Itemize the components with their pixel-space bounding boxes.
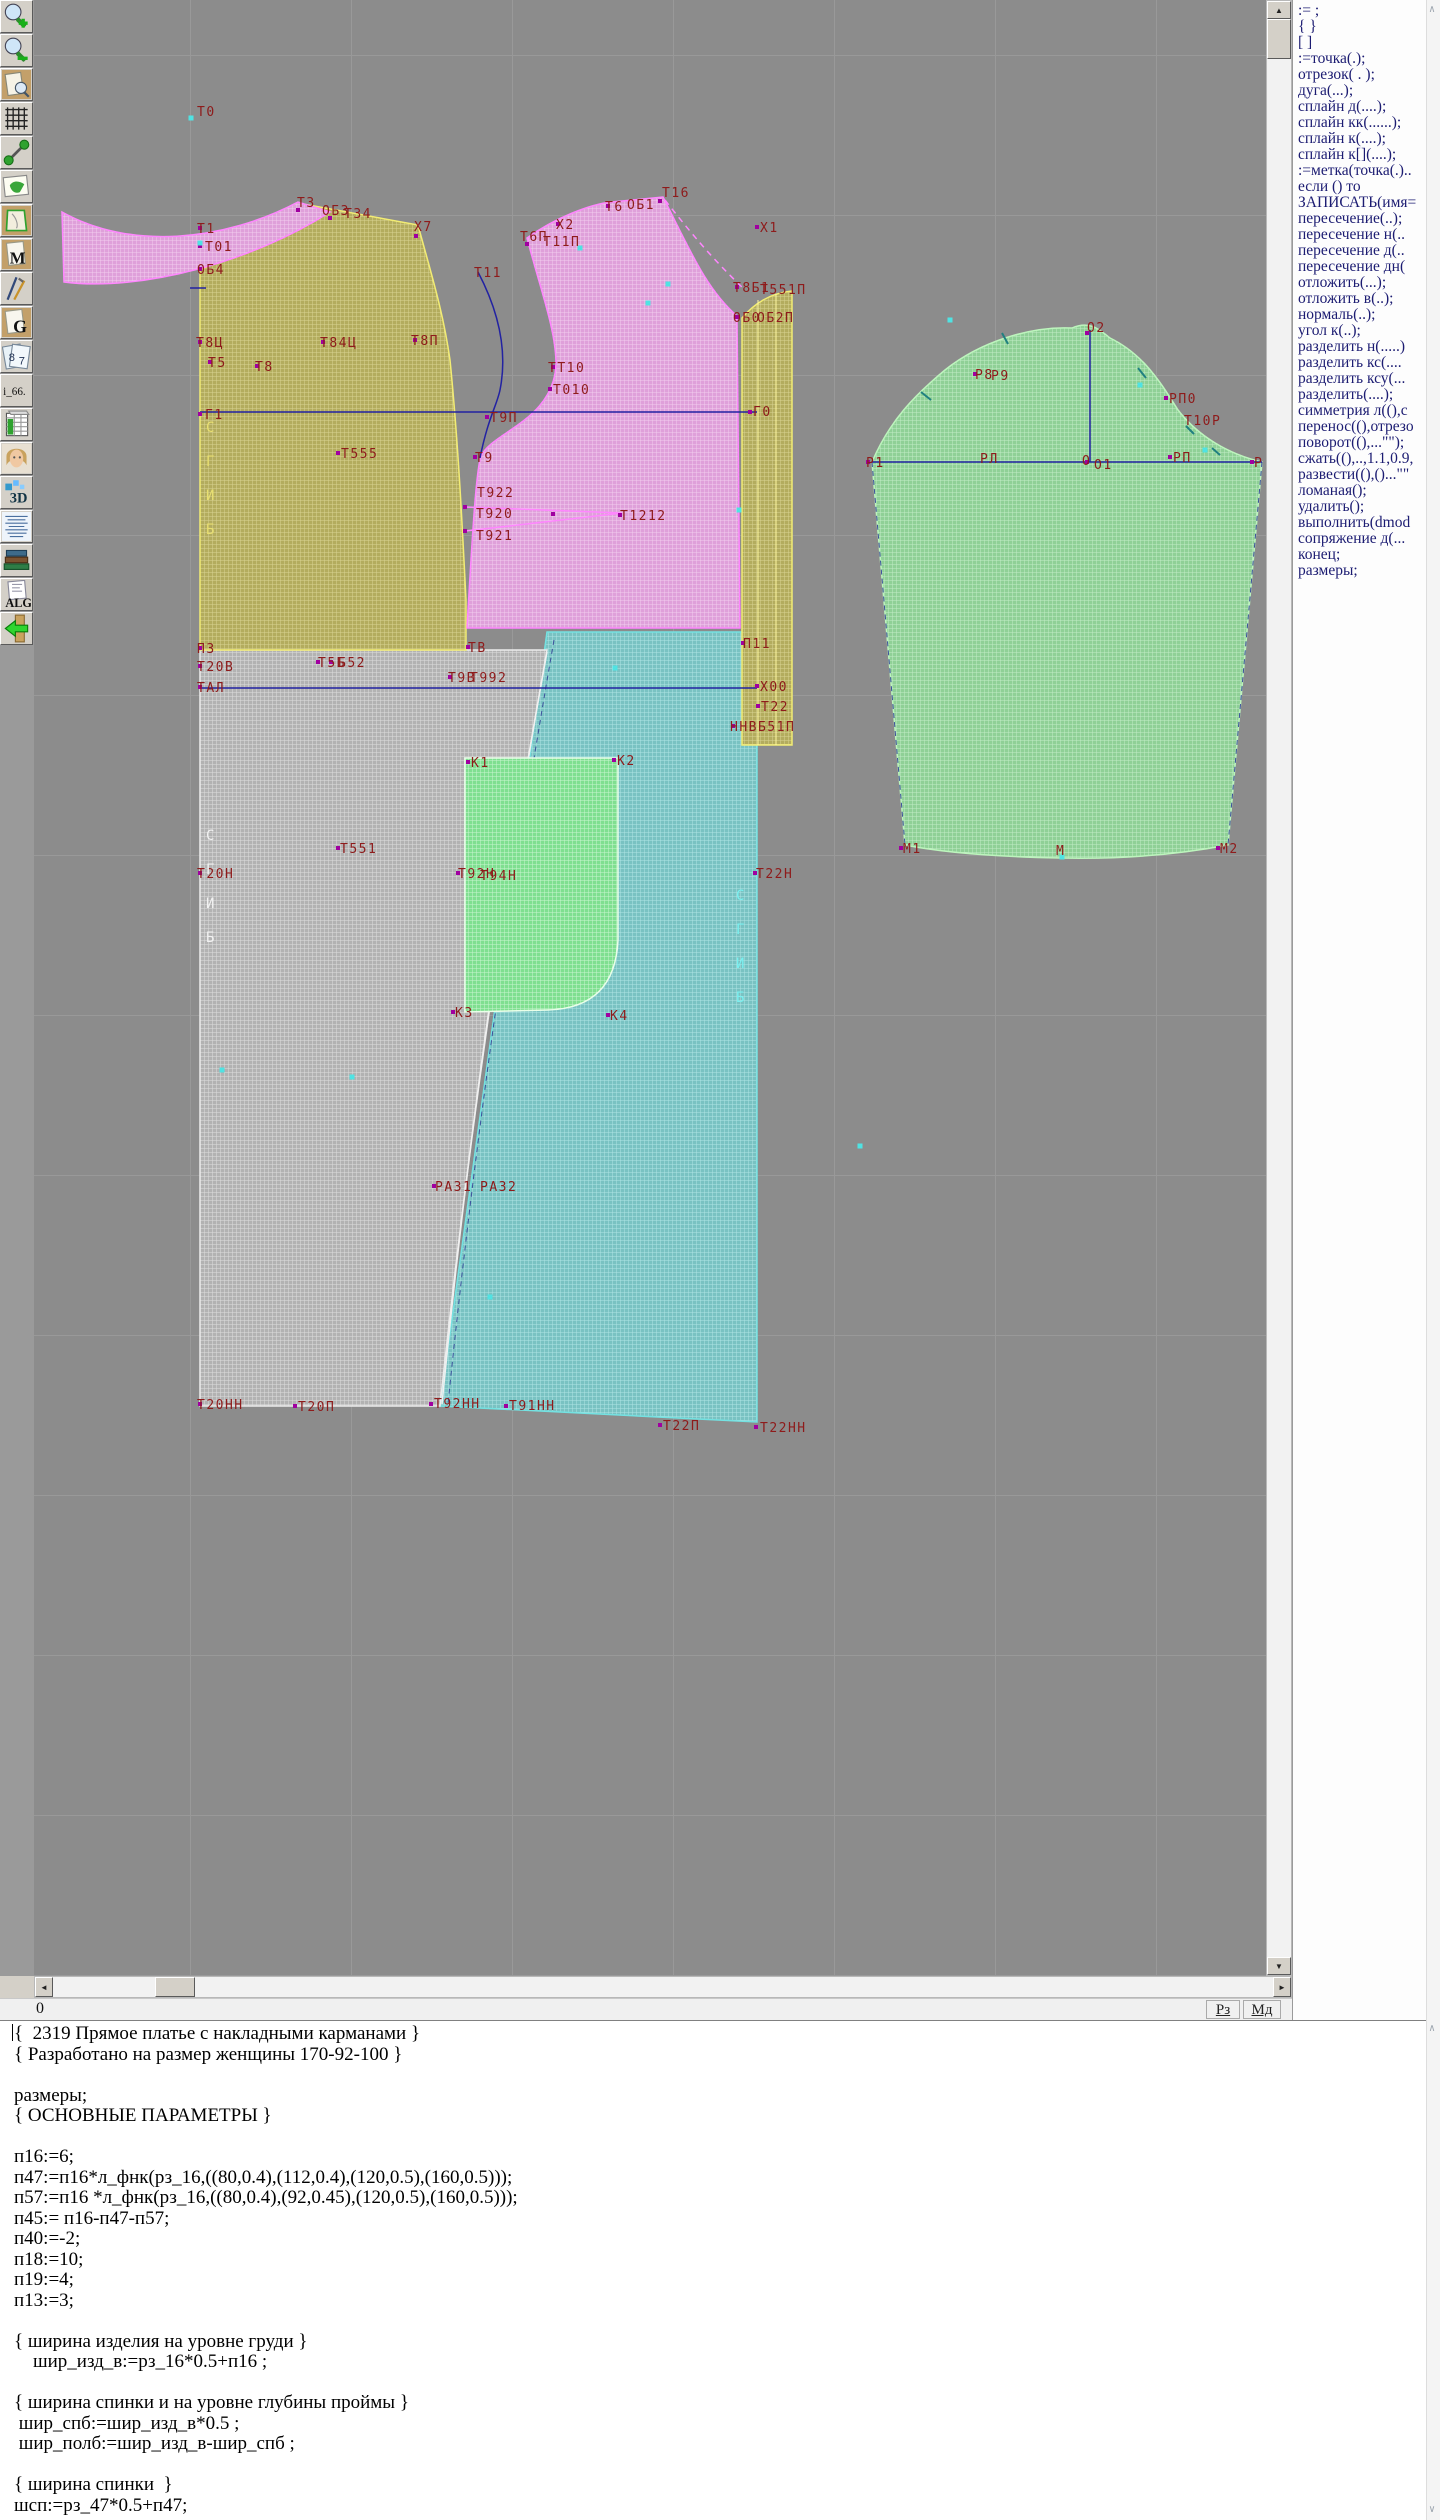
point-label: Б52 [338,656,366,671]
hscroll-thumb[interactable] [155,1977,195,1997]
command-item[interactable]: сплайн кк(......); [1298,115,1426,131]
point-label: М1 [903,842,922,857]
point-label: Р1 [866,456,885,471]
measure-icon [2,138,31,167]
point-label: ТАЛ [197,681,225,696]
chevron-up-icon[interactable]: ∧ [1429,4,1435,15]
pattern-piece-icon [2,206,31,235]
command-item[interactable]: если () то [1298,179,1426,195]
command-item[interactable]: поворот((),...""); [1298,435,1426,451]
command-item[interactable]: размеры; [1298,563,1426,579]
vscroll-thumb[interactable] [1267,19,1291,59]
graphs-g-icon: G [2,308,31,337]
point-label: Т22Н [756,867,793,882]
command-item[interactable]: ломаная(); [1298,483,1426,499]
algorithms-button[interactable]: ALG [0,578,33,611]
piece-side-panel[interactable] [742,291,792,745]
command-item[interactable]: разделить ксу(... [1298,371,1426,387]
editor-scrollbar[interactable]: ∧ ∨ [1426,2020,1440,2520]
command-item[interactable]: пересечение(..); [1298,211,1426,227]
command-item[interactable]: разделить кс(.... [1298,355,1426,371]
point-label: К2 [617,754,636,769]
svg-text:M: M [10,248,26,267]
command-item[interactable]: := ; [1298,3,1426,19]
point-label: Т551П [760,283,807,298]
point-label: Т5 [208,356,227,371]
layout-map-button[interactable] [0,170,33,203]
point-label: Т22НН [760,1421,807,1436]
point-label: Т992 [470,671,507,686]
measure-button[interactable] [0,136,33,169]
md-button[interactable]: Мд [1243,2000,1281,2019]
command-item[interactable]: разделить н(.....) [1298,339,1426,355]
point-label: Т94Н [480,869,517,884]
point-label: Х00 [760,680,788,695]
scroll-left-arrow[interactable]: ◄ [35,1977,53,1997]
piece-back-bodice[interactable] [200,203,466,650]
model-photo-icon [2,444,31,473]
draw-tools-icon [2,274,31,303]
scroll-right-arrow[interactable]: ► [1273,1977,1291,1997]
point-label: РАЗ2 [480,1180,517,1195]
command-item[interactable]: отложить(...); [1298,275,1426,291]
command-item[interactable]: нормаль(..); [1298,307,1426,323]
command-panel-scrollbar[interactable]: ∧ [1426,0,1440,2020]
rz-button[interactable]: Рз [1206,2000,1240,2019]
point-label: Т1 [197,222,216,237]
command-item[interactable]: [ ] [1298,35,1426,51]
point-label: Т8 [255,360,274,375]
print-preview-icon [2,70,31,99]
command-item[interactable]: сплайн к(....); [1298,131,1426,147]
point-label: Т10Р [1184,414,1221,429]
algorithms-icon: ALG [2,580,31,609]
svg-text:G: G [13,317,27,337]
point-label: К4 [610,1009,629,1024]
command-item[interactable]: пересечение д(.. [1298,243,1426,259]
program-editor[interactable]: { 2319 Прямое платье с накладными карман… [0,2020,1440,2520]
size-i66-icon: i_66. [2,376,31,405]
point-label: П3 [197,642,216,657]
svg-text:3D: 3D [10,491,28,507]
point-label: Т8Ц [196,336,224,351]
point-label: О2 [1087,321,1106,336]
command-item[interactable]: ЗАПИСАТЬ(имя= [1298,195,1426,211]
command-item[interactable]: конец; [1298,547,1426,563]
point-label: Т1212 [620,509,667,524]
svg-text:7: 7 [19,355,25,367]
zoom-out-icon [2,36,31,65]
command-item[interactable]: развести((),()..."" [1298,467,1426,483]
scroll-down-arrow[interactable]: ▼ [1267,1957,1291,1975]
point-label: Т22 [761,700,789,715]
point-label: РЛ [980,452,999,467]
command-item[interactable]: выполнить(dmod [1298,515,1426,531]
marking-m-button[interactable]: M [0,238,33,271]
svg-text:8: 8 [9,352,15,364]
chevron-up-icon[interactable]: ∧ [1429,2023,1435,2034]
point-label: ОБ1 [627,198,655,213]
point-label: Т20П [298,1400,335,1415]
point-label: К1 [471,756,490,771]
point-label: Т20НН [197,1398,244,1413]
point-label: Х7 [414,220,433,235]
point-label: Т0 [197,105,216,120]
point-label: Т9 [475,451,494,466]
size-table-icon [2,410,31,439]
point-label: Х1 [760,221,779,236]
point-label: Т555 [341,447,378,462]
command-item[interactable]: сопряжение д(... [1298,531,1426,547]
command-item[interactable]: сжать((),..,1.1,0.9, [1298,451,1426,467]
point-label: РП0 [1169,392,1197,407]
command-item[interactable]: сплайн д(....); [1298,99,1426,115]
command-item[interactable]: удалить(); [1298,499,1426,515]
toolbar: MG87i_66.3DALG [0,0,34,1976]
point-label: Х2 [556,218,575,233]
graphs-g-button[interactable]: G [0,306,33,339]
canvas-hscrollbar[interactable]: ◄ ► [34,1976,1292,1998]
zoom-in-icon [2,2,31,31]
point-label: Т920 [476,507,513,522]
exit-icon [2,614,31,643]
point-label: ННВБ51П [730,720,795,735]
scroll-up-arrow[interactable]: ▲ [1267,1,1291,19]
sizes-sheet-icon: 87 [2,342,31,371]
point-label: О [1082,454,1091,469]
point-label: Т91НН [509,1399,556,1414]
point-label: Т6 [605,200,624,215]
point-label: М [1056,844,1065,859]
point-label: РАЗ1 [435,1180,472,1195]
point-label: Т22П [663,1419,700,1434]
grid-button[interactable] [0,102,33,135]
point-label: Т34 [344,207,372,222]
point-label: М2 [1220,842,1239,857]
print-preview-button[interactable] [0,68,33,101]
point-label: Т921 [476,529,513,544]
canvas-vscrollbar[interactable]: ▲ ▼ [1266,0,1292,1976]
svg-text:i_66.: i_66. [3,386,26,398]
point-label: РП [1173,451,1192,466]
point-label: Т16 [662,186,690,201]
size-table-button[interactable] [0,408,33,441]
point-label: О1 [1094,458,1113,473]
draw-tools-button[interactable] [0,272,33,305]
exit-button[interactable] [0,612,33,645]
command-item[interactable]: угол к(..); [1298,323,1426,339]
point-label: ОБ2П [757,311,794,326]
view-3d-button[interactable]: 3D [0,476,33,509]
point-label: Р [1254,456,1263,471]
command-item[interactable]: :=метка(точка(.).. [1298,163,1426,179]
text-list-icon [2,512,31,541]
point-label: Т92НН [434,1397,481,1412]
point-label: Т922 [477,486,514,501]
point-label: Т20Н [197,867,234,882]
command-item[interactable]: пересечение н(.. [1298,227,1426,243]
command-list: := ;{ }[ ]:=точка(.);отрезок( . );дуга(.… [1293,0,1426,579]
command-item[interactable]: перенос((),отрезо [1298,419,1426,435]
pattern-piece-button[interactable] [0,204,33,237]
command-item[interactable]: дуга(...); [1298,83,1426,99]
point-label: ОБ4 [197,263,225,278]
reference-books-button[interactable] [0,544,33,577]
point-label: Т3 [297,196,316,211]
command-panel: := ;{ }[ ]:=точка(.);отрезок( . );дуга(.… [1292,0,1426,2020]
point-label: К3 [455,1006,474,1021]
point-label: Т551 [340,842,377,857]
point-label: Г0 [753,405,772,420]
reference-books-icon [2,546,31,575]
command-item[interactable]: пересечение дн( [1298,259,1426,275]
command-item[interactable]: разделить(....); [1298,387,1426,403]
chevron-down-icon[interactable]: ∨ [1429,2504,1435,2515]
view-3d-icon: 3D [2,478,31,507]
command-item[interactable]: { } [1298,19,1426,35]
marking-m-icon: M [2,240,31,269]
point-label: ТТ10 [548,361,585,376]
text-list-button[interactable] [0,510,33,543]
zoom-in-button[interactable] [0,0,33,33]
point-label: Т84Ц [320,336,357,351]
point-label: Т9П [490,411,518,426]
status-value: 0 [36,2000,44,2018]
pattern-canvas[interactable]: Т0Т1Т01ОБ4Т3ОБ3Т34Х7Т8ЦТ84ЦТ8ПТ5Т8Т16Т6О… [34,0,1266,1976]
size-i66-button[interactable]: i_66. [0,374,33,407]
command-item[interactable]: сплайн к[](....); [1298,147,1426,163]
zoom-out-button[interactable] [0,34,33,67]
svg-text:ALG: ALG [5,596,31,609]
sizes-sheet-button[interactable]: 87 [0,340,33,373]
point-label: Т11П [543,235,580,250]
point-label: Т20В [197,660,234,675]
point-label: ТВ [468,641,487,656]
text-cursor [12,2024,13,2041]
program-text[interactable]: { 2319 Прямое платье с накладными карман… [0,2021,1440,2516]
status-bar: 0 Рз Мд [0,1998,1292,2020]
point-label: Т010 [553,383,590,398]
command-item[interactable]: отложить в(..); [1298,291,1426,307]
command-item[interactable]: симметрия л((),с [1298,403,1426,419]
piece-pocket[interactable] [465,758,618,1012]
model-photo-button[interactable] [0,442,33,475]
point-label: Т11 [474,266,502,281]
point-label: Т8П [411,334,439,349]
grid-icon [2,104,31,133]
point-label: Т01 [205,240,233,255]
point-label: Р9 [991,369,1010,384]
command-item[interactable]: :=точка(.); [1298,51,1426,67]
point-label: П11 [743,637,771,652]
layout-map-icon [2,172,31,201]
command-item[interactable]: отрезок( . ); [1298,67,1426,83]
